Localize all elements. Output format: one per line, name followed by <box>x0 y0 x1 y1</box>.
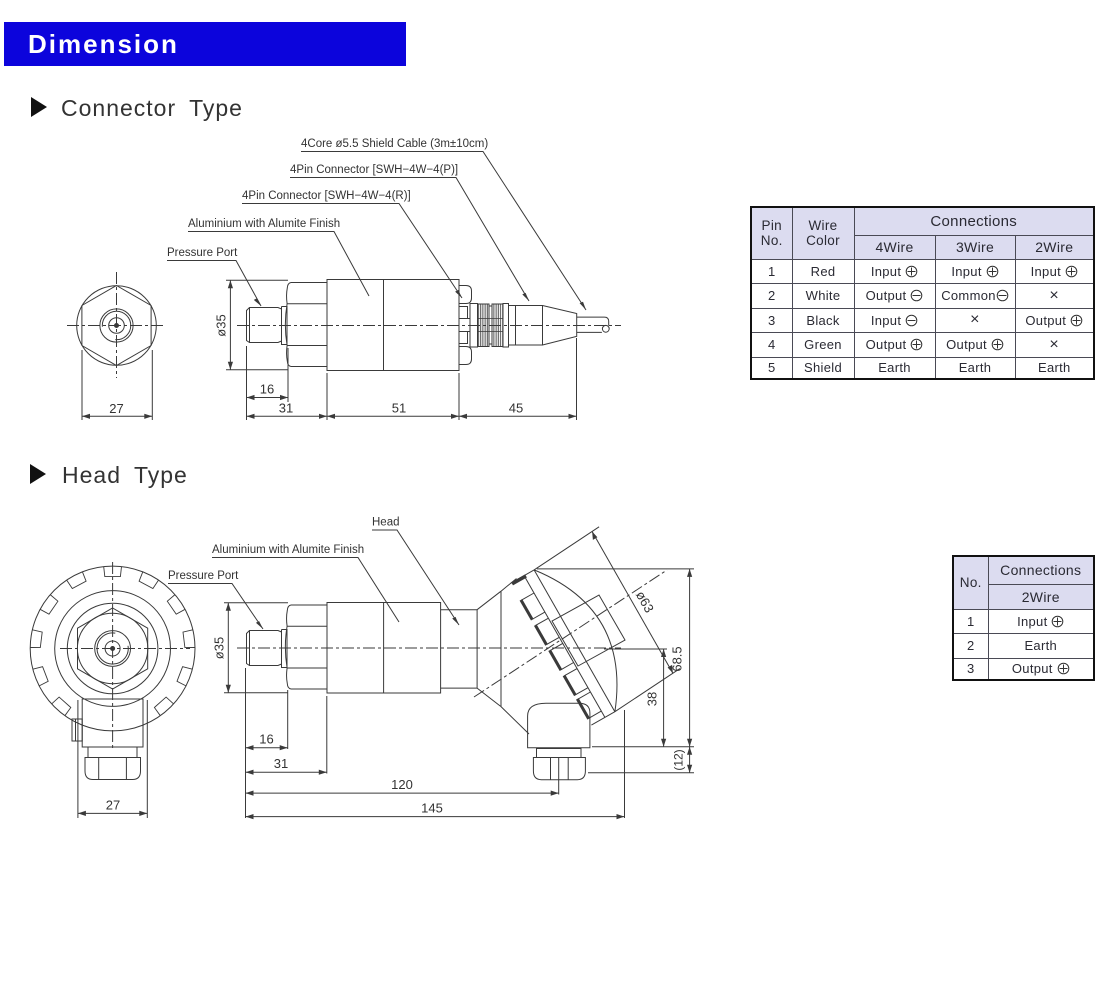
svg-text:4Pin Connector [SWH−4W−4(R)]: 4Pin Connector [SWH−4W−4(R)] <box>242 190 411 202</box>
svg-text:ø63: ø63 <box>633 588 657 615</box>
svg-text:Aluminium with Alumite Finish: Aluminium with Alumite Finish <box>212 544 364 556</box>
svg-text:51: 51 <box>392 401 406 416</box>
svg-text:31: 31 <box>274 756 288 771</box>
svg-text:120: 120 <box>391 777 413 792</box>
svg-text:16: 16 <box>259 732 273 747</box>
svg-text:145: 145 <box>421 801 443 816</box>
svg-text:45: 45 <box>509 401 523 416</box>
svg-text:27: 27 <box>106 798 120 813</box>
svg-text:Pressure Port: Pressure Port <box>167 247 238 259</box>
svg-text:Head: Head <box>372 517 400 529</box>
svg-text:27: 27 <box>109 401 123 416</box>
svg-text:31: 31 <box>279 401 293 416</box>
svg-text:16: 16 <box>260 382 274 397</box>
svg-text:4Core ø5.5 Shield Cable (3m±10: 4Core ø5.5 Shield Cable (3m±10cm) <box>301 138 488 150</box>
svg-text:(12): (12) <box>672 749 686 770</box>
svg-text:ø35: ø35 <box>212 637 227 659</box>
svg-text:Pressure Port: Pressure Port <box>168 570 239 582</box>
svg-text:4Pin Connector [SWH−4W−4(P)]: 4Pin Connector [SWH−4W−4(P)] <box>290 164 458 176</box>
svg-text:Aluminium with Alumite Finish: Aluminium with Alumite Finish <box>188 218 340 230</box>
svg-text:ø35: ø35 <box>214 314 229 336</box>
svg-text:38: 38 <box>645 692 660 706</box>
